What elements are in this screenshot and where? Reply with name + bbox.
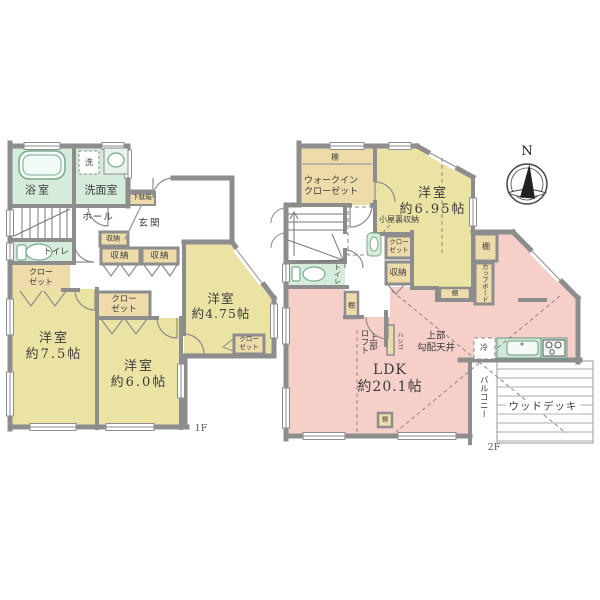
f1-stairs-icon (14, 208, 70, 238)
floor-plan-drawing (0, 0, 600, 600)
f2-stairs-icon (288, 212, 345, 262)
label-f2-shelf-dining2: 棚 (452, 290, 459, 298)
label-f2-wood-deck: ウッドデッキ (506, 401, 581, 414)
compass-icon (507, 164, 547, 204)
label-f1-closet-mid: クロー ゼット (111, 295, 137, 316)
label-f1-shoe-cabinet: 下駄箱 (132, 194, 152, 202)
label-f2-loft-above: 上部 ロフト (360, 329, 377, 355)
label-f2-shelf-bottom: 棚 (382, 416, 388, 423)
label-f2-balcony: バルコニー (479, 376, 488, 419)
label-f1-toilet: トイレ (43, 247, 69, 257)
label-f2-cupboard: カップボード (481, 264, 488, 303)
label-f2-storage: 収納 (389, 268, 406, 278)
label-f1-room-60: 洋室 約6.0帖 (111, 359, 168, 391)
label-f1-room-475: 洋室 約4.75帖 (192, 291, 251, 322)
label-f2-refrigerator: 冷 (480, 343, 488, 353)
wash-basin-icon (104, 148, 128, 174)
toilet-icon-f2 (292, 267, 325, 281)
label-f1-closet-side: クロー ゼット (29, 267, 53, 287)
bathtub-icon (19, 151, 65, 179)
label-f2-ldk: LDK 約20.1帖 (357, 362, 422, 396)
label-f2-toilet: トイレ (334, 264, 341, 285)
label-f2-ladder: ハシゴ (396, 332, 402, 350)
label-f1-bath: 浴室 (25, 183, 51, 196)
label-f2-wic: ウォークイン クローゼット (304, 176, 358, 198)
label-f2-wic-shelf: 棚 (331, 152, 339, 161)
label-f1-floor-tag: 1F (195, 423, 208, 435)
label-f1-storage-small: 収納 (106, 235, 120, 244)
label-f1-hall: ホール (82, 212, 114, 224)
basin-icon-f2 (367, 233, 381, 256)
label-f2-shelf-hall: 棚 (348, 302, 355, 309)
label-f2-floor-tag: 2F (488, 442, 501, 454)
label-f1-storage-right: 収納 (150, 251, 169, 261)
label-f2-shelf-dining: 棚 (482, 242, 490, 252)
stove-icon (543, 340, 565, 356)
label-f2-sloped-ceiling: 上部 勾配天井 (417, 330, 455, 353)
label-compass-north: N (521, 144, 532, 160)
label-f1-room-75: 洋室 約7.5帖 (26, 331, 83, 363)
floor-plan-canvas: 浴室 洗面室 洗 ホール 下駄箱 玄関 収納 収納 収納 トイレ クロー ゼット… (0, 0, 600, 600)
label-f2-closet: クロー ゼット (389, 239, 409, 255)
label-f2-room-695: 洋室 約6.95帖 (400, 186, 467, 218)
label-f1-closet-corner: クロー ゼット (239, 336, 259, 352)
label-f2-attic-storage: 小屋裏収納 (379, 215, 419, 225)
label-f1-storage-left: 収納 (110, 251, 129, 261)
label-f1-washer: 洗 (85, 158, 93, 168)
label-f1-entrance: 玄関 (138, 218, 161, 230)
label-f1-washroom: 洗面室 (85, 183, 118, 196)
